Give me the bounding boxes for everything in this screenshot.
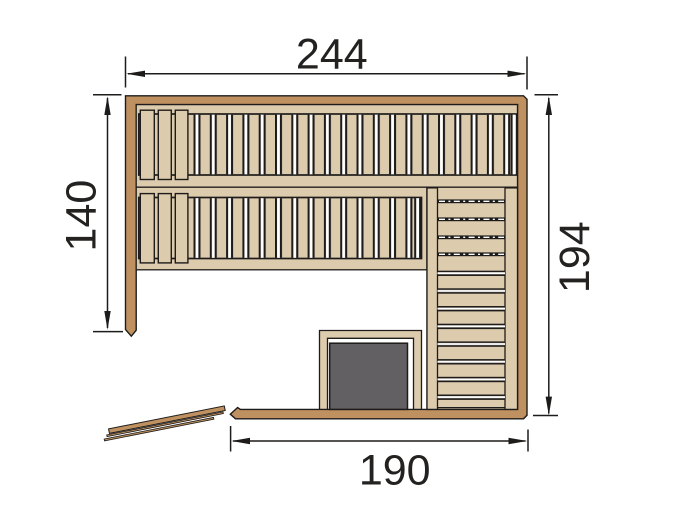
svg-text:190: 190 <box>359 446 431 494</box>
svg-text:194: 194 <box>551 221 599 293</box>
svg-text:140: 140 <box>57 180 105 252</box>
svg-text:244: 244 <box>296 31 368 79</box>
